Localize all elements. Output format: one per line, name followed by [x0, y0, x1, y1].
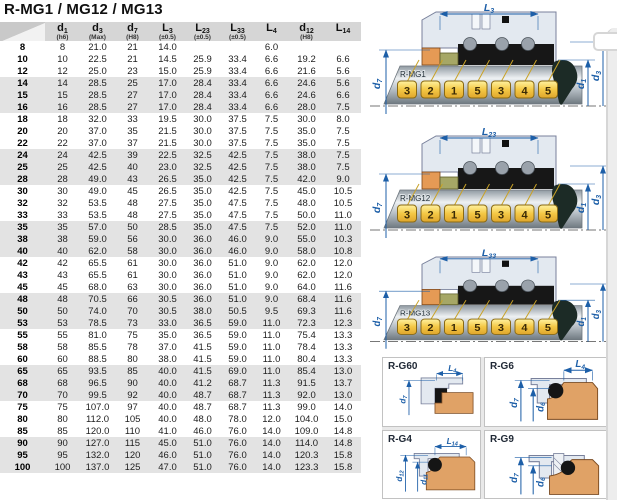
dimension-cell: 14.0	[255, 425, 288, 437]
dimension-cell: 49.0	[80, 173, 115, 185]
dimension-cell: 93.5	[80, 365, 115, 377]
dimension-cell: 21.5	[150, 125, 185, 137]
dimension-cell: 11.3	[255, 377, 288, 389]
column-header: L3(±0.5)	[150, 22, 185, 41]
row-size-label: 14	[0, 77, 45, 89]
table-row: 9595132.012046.051.076.014.0120.315.8	[0, 449, 361, 461]
dimension-cell: 41.5	[185, 365, 220, 377]
dimension-cell: 30.0	[150, 257, 185, 269]
dimension-cell: 10	[45, 53, 80, 65]
dimension-cell: 57.0	[80, 221, 115, 233]
dimension-cell: 12.3	[325, 317, 361, 329]
dimension-cell: 24.6	[288, 77, 325, 89]
dimension-cell: 45.0	[288, 185, 325, 197]
row-size-label: 22	[0, 137, 45, 149]
seat-drawing-r-g4: L14 d12 d11	[383, 431, 480, 499]
dimension-cell: 59.0	[220, 353, 255, 365]
dimension-cell: 32.5	[185, 161, 220, 173]
dimension-cell: 11.0	[255, 365, 288, 377]
dimension-cell: 40.0	[150, 389, 185, 401]
dimension-cell: 12.0	[255, 413, 288, 425]
seal-diagram-r-mg13: R-MG13 3215345 L33 d7 d1 d3	[366, 248, 612, 356]
svg-text:1: 1	[451, 86, 457, 98]
dimension-cell: 32.0	[80, 113, 115, 125]
dimension-cell: 10.5	[325, 185, 361, 197]
dimension-cell: 11.3	[255, 401, 288, 413]
dimension-cell: 48.0	[185, 413, 220, 425]
dimension-cell: 47.5	[220, 209, 255, 221]
dimension-cell: 8.0	[325, 113, 361, 125]
dimension-cell: 9.0	[255, 233, 288, 245]
dimension-cell: 61	[115, 257, 150, 269]
dimension-cell: 42.5	[220, 149, 255, 161]
dimension-cell: 105	[115, 413, 150, 425]
dimension-cell: 36.0	[185, 257, 220, 269]
table-header-row: d1(h6)d3(Max)d7(H8)L3(±0.5)L23(±0.5)L33(…	[0, 22, 361, 41]
dimension-cell: 85.4	[288, 365, 325, 377]
dimension-cell: 11.6	[325, 293, 361, 305]
dimension-cell: 6.6	[325, 53, 361, 65]
dimension-cell: 35.0	[185, 185, 220, 197]
dimension-cell: 7.5	[325, 149, 361, 161]
table-row: 8821.02114.06.0	[0, 41, 361, 53]
dimension-cell: 11.3	[255, 389, 288, 401]
seat-panel-r-g9: R-G9 d7 d6	[484, 430, 611, 500]
row-size-label: 80	[0, 413, 45, 425]
dimension-cell: 99.0	[288, 401, 325, 413]
dimension-cell: 30.0	[288, 113, 325, 125]
dimension-cell: 21.0	[80, 41, 115, 53]
dimension-cell: 65	[45, 365, 80, 377]
table-row: 383859.05630.036.046.09.055.010.3	[0, 233, 361, 245]
dimension-cell: 28.5	[150, 221, 185, 233]
dimension-cell: 78	[115, 341, 150, 353]
dimension-cell: 9.0	[255, 281, 288, 293]
dimension-cell: 70	[45, 389, 80, 401]
dimension-cell: 30.0	[150, 269, 185, 281]
dimension-cell: 68.4	[288, 293, 325, 305]
column-header: L4	[255, 22, 288, 41]
dimension-cell	[185, 41, 220, 53]
dimension-cell: 7.5	[255, 197, 288, 209]
dimension-cell: 32.5	[185, 149, 220, 161]
dimension-cell: 32	[45, 197, 80, 209]
row-size-label: 25	[0, 161, 45, 173]
table-row: 353557.05028.535.047.57.552.011.0	[0, 221, 361, 233]
table-row: 484870.56630.536.051.09.068.411.6	[0, 293, 361, 305]
dimension-cell: 19.5	[150, 113, 185, 125]
seat-drawing-r-g60: L4 d7	[383, 358, 480, 426]
dimension-cell: 56	[115, 233, 150, 245]
svg-text:5: 5	[545, 86, 551, 98]
dimension-cell: 45	[115, 185, 150, 197]
dimension-cell: 15.8	[325, 449, 361, 461]
dimension-cell: 48.7	[185, 389, 220, 401]
page-title: R-MG1 / MG12 / MG13	[4, 1, 163, 18]
dim-label-l4: L4	[575, 359, 585, 371]
dimension-cell: 112.0	[80, 413, 115, 425]
dimension-cell: 50.5	[220, 305, 255, 317]
dimension-cell: 66	[115, 293, 150, 305]
dimension-cell: 91.5	[288, 377, 325, 389]
dimension-cell: 36.5	[185, 317, 220, 329]
dimension-cell: 58.0	[288, 245, 325, 257]
dimension-cell: 9.0	[255, 293, 288, 305]
svg-text:3: 3	[498, 210, 504, 222]
dimension-cell: 64.0	[288, 281, 325, 293]
dimension-cell: 30.0	[150, 281, 185, 293]
table-row: 555581.07535.036.559.011.075.413.3	[0, 329, 361, 341]
dimension-cell: 35.0	[288, 125, 325, 137]
dimension-cell: 76.0	[220, 425, 255, 437]
dimension-cell: 9.0	[325, 173, 361, 185]
row-size-label: 38	[0, 233, 45, 245]
dimension-cell: 41.5	[185, 353, 220, 365]
dimension-cell: 7.5	[255, 125, 288, 137]
dimension-cell: 42.5	[220, 161, 255, 173]
dimension-cell: 28.0	[288, 101, 325, 113]
dimension-cell: 42.0	[288, 173, 325, 185]
dimension-cell: 46.0	[220, 245, 255, 257]
dim-label-top: L23	[482, 126, 496, 139]
dimension-cell: 30.5	[150, 293, 185, 305]
dimension-cell: 80.4	[288, 353, 325, 365]
row-size-label: 8	[0, 41, 45, 53]
row-size-label: 90	[0, 437, 45, 449]
row-size-label: 12	[0, 65, 45, 77]
dimension-cell: 47.5	[220, 221, 255, 233]
row-size-label: 28	[0, 173, 45, 185]
dimension-cell: 15.8	[325, 461, 361, 473]
dimension-cell: 52.0	[288, 221, 325, 233]
dimension-cell: 41.5	[185, 341, 220, 353]
dimension-cell: 26.5	[150, 173, 185, 185]
row-size-label: 32	[0, 197, 45, 209]
dimension-cell: 45	[45, 281, 80, 293]
dim-label-d7: d7	[371, 78, 384, 89]
svg-text:5: 5	[474, 324, 480, 334]
svg-text:4: 4	[521, 86, 528, 98]
table-row: 404062.05830.036.046.09.058.010.8	[0, 245, 361, 257]
page-edge-tab	[593, 32, 617, 51]
dimension-cell: 46.0	[220, 233, 255, 245]
dimension-cell: 23	[115, 65, 150, 77]
dimension-cell: 43	[45, 269, 80, 281]
dim-label-top: L3	[484, 2, 494, 15]
svg-text:3: 3	[404, 324, 410, 334]
dimension-cell: 16	[45, 101, 80, 113]
row-size-label: 18	[0, 113, 45, 125]
dimension-cell: 75	[45, 401, 80, 413]
dimension-cell: 80	[45, 413, 80, 425]
dimension-cell: 14.8	[325, 437, 361, 449]
dimension-cell: 72.3	[288, 317, 325, 329]
dimension-cell: 45.0	[150, 437, 185, 449]
dim-label-top: L33	[482, 249, 496, 260]
dimension-cell: 92	[115, 389, 150, 401]
dimension-cell: 19.2	[288, 53, 325, 65]
dimension-cell: 30.0	[185, 125, 220, 137]
dimension-cell: 104.0	[288, 413, 325, 425]
dimension-cell: 51.0	[185, 437, 220, 449]
dimension-cell: 7.5	[325, 137, 361, 149]
dim-label-l14: L14	[447, 436, 459, 446]
dimension-cell: 51.0	[185, 449, 220, 461]
dimension-cell: 11.0	[255, 317, 288, 329]
table-row: 424265.56130.036.051.09.062.012.0	[0, 257, 361, 269]
dimension-cell: 30.5	[150, 305, 185, 317]
dimension-cell: 26.5	[150, 185, 185, 197]
dimension-cell: 20	[45, 125, 80, 137]
dimension-cell: 30.0	[185, 137, 220, 149]
dimension-cell: 11.0	[255, 329, 288, 341]
dim-label-d7: d7	[372, 317, 385, 327]
dimension-cell: 35.0	[150, 329, 185, 341]
dimension-cell: 49.0	[80, 185, 115, 197]
dimension-cell: 36.0	[185, 293, 220, 305]
svg-text:2: 2	[427, 210, 433, 222]
dimension-cell: 69.3	[288, 305, 325, 317]
dimension-cell: 37.0	[80, 137, 115, 149]
column-header: L23(±0.5)	[185, 22, 220, 41]
dimension-cell: 7.5	[325, 101, 361, 113]
row-size-label: 85	[0, 425, 45, 437]
table-row: 585885.57837.041.559.011.078.413.3	[0, 341, 361, 353]
dimension-cell: 14.5	[150, 53, 185, 65]
dimension-cell: 17.0	[150, 89, 185, 101]
dimension-cell: 48	[115, 197, 150, 209]
dimension-cell: 28.5	[80, 89, 115, 101]
dimension-cell: 6.0	[255, 41, 288, 53]
dim-label-l4: L4	[448, 364, 457, 374]
dimension-cell: 9.0	[255, 245, 288, 257]
dimension-cell: 115	[115, 437, 150, 449]
column-header: d1(h6)	[45, 22, 80, 41]
dimension-cell: 13.3	[325, 329, 361, 341]
dimension-cell: 14.0	[255, 449, 288, 461]
dimension-cell: 35.0	[185, 197, 220, 209]
dimension-cell: 18	[45, 113, 80, 125]
dimension-cell: 51.0	[220, 269, 255, 281]
dimension-cell: 7.5	[325, 125, 361, 137]
dimension-cell: 7.5	[255, 137, 288, 149]
dimension-cell: 37.5	[220, 113, 255, 125]
dimension-cell: 10.3	[325, 233, 361, 245]
column-header: d3(Max)	[80, 22, 115, 41]
dimension-cell: 11.0	[325, 209, 361, 221]
dimension-cell: 48.7	[185, 401, 220, 413]
seat-variant-grid: R-G60 L4 d7 R-G6 L4 d7 d6	[382, 357, 612, 499]
table-row: 100100137.012547.051.076.014.0123.315.8	[0, 461, 361, 473]
dimension-cell: 6.6	[255, 77, 288, 89]
dimension-cell: 85	[45, 425, 80, 437]
dimension-cell: 59.0	[220, 317, 255, 329]
dimension-cell: 17.0	[150, 77, 185, 89]
dimension-cell: 12	[45, 65, 80, 77]
dimension-cell: 123.3	[288, 461, 325, 473]
dimension-cell: 33.0	[150, 317, 185, 329]
dimension-cell: 27	[115, 101, 150, 113]
row-size-label: 24	[0, 149, 45, 161]
dimension-cell: 21.5	[150, 137, 185, 149]
table-row: 101022.52114.525.933.46.619.26.6	[0, 53, 361, 65]
seat-panel-r-g4: R-G4 L14 d12 d11	[382, 430, 481, 500]
figure-label: R-MG12	[400, 194, 431, 203]
table-row: 282849.04326.535.042.57.542.09.0	[0, 173, 361, 185]
dimension-cell: 28.4	[185, 101, 220, 113]
column-header: L33(±0.5)	[220, 22, 255, 41]
row-size-label: 65	[0, 365, 45, 377]
row-size-label: 15	[0, 89, 45, 101]
dimension-cell: 85	[115, 365, 150, 377]
row-size-label: 100	[0, 461, 45, 473]
dimension-cell: 76.0	[220, 437, 255, 449]
dimension-cell: 96.5	[80, 377, 115, 389]
dimension-cell: 25	[115, 77, 150, 89]
dimension-cell: 22	[45, 137, 80, 149]
dimension-cell: 81.0	[80, 329, 115, 341]
dimension-cell: 78.0	[220, 413, 255, 425]
seal-diagram-r-mg1: R-MG1 3215345 L3 d7 d1 d3	[366, 2, 612, 122]
dimension-cell: 27.5	[150, 209, 185, 221]
dimension-cell: 7.5	[255, 221, 288, 233]
dimension-cell: 24	[45, 149, 80, 161]
dimension-cell: 35.0	[185, 209, 220, 221]
dimension-cell: 25.0	[80, 65, 115, 77]
dimension-cell: 90	[45, 437, 80, 449]
svg-text:1: 1	[451, 210, 457, 222]
seat-drawing-r-g6: L4 d7 d6	[485, 358, 610, 426]
dimension-cell: 15.0	[325, 413, 361, 425]
dim-label-d3: d3	[590, 71, 603, 81]
dimension-cell: 47.0	[150, 461, 185, 473]
dimension-cell: 22.5	[150, 149, 185, 161]
dimension-cell: 38.0	[150, 353, 185, 365]
dimension-cell: 51.0	[185, 461, 220, 473]
dimension-cell: 7.5	[255, 113, 288, 125]
dim-label-d3: d3	[590, 195, 603, 205]
dimension-cell: 28.5	[80, 101, 115, 113]
dimension-cell	[220, 41, 255, 53]
svg-text:2: 2	[427, 324, 433, 334]
row-size-label: 48	[0, 293, 45, 305]
table-row: 323253.54827.535.047.57.548.010.5	[0, 197, 361, 209]
dimension-cell: 70	[115, 305, 150, 317]
dimension-cell: 21	[115, 53, 150, 65]
dimension-cell: 48	[45, 293, 80, 305]
dimension-cell: 78.5	[80, 317, 115, 329]
table-row: 252542.54023.032.542.57.538.07.5	[0, 161, 361, 173]
dim-label-d3: d3	[591, 310, 604, 320]
dimension-cell: 15.0	[150, 65, 185, 77]
dimension-cell: 42.5	[220, 185, 255, 197]
dimension-cell: 7.5	[255, 149, 288, 161]
dimension-cell: 6.6	[255, 53, 288, 65]
table-body: 8821.02114.06.0101022.52114.525.933.46.6…	[0, 41, 361, 473]
table-row: 8585120.011041.046.076.014.0109.014.8	[0, 425, 361, 437]
row-size-label: 95	[0, 449, 45, 461]
dimension-cell: 63	[115, 281, 150, 293]
dimension-cell: 38.0	[288, 161, 325, 173]
dimension-cell: 6.6	[255, 89, 288, 101]
dimension-cell: 92.0	[288, 389, 325, 401]
dimension-cell: 10.5	[325, 197, 361, 209]
dimension-table: d1(h6)d3(Max)d7(H8)L3(±0.5)L23(±0.5)L33(…	[0, 22, 361, 473]
dimension-cell: 59.0	[80, 233, 115, 245]
table-row: 242442.53922.532.542.57.538.07.5	[0, 149, 361, 161]
row-size-label: 40	[0, 245, 45, 257]
dimension-cell: 13.3	[325, 341, 361, 353]
dimension-cell: 33	[45, 209, 80, 221]
dimension-cell: 11.0	[255, 341, 288, 353]
row-size-label: 30	[0, 185, 45, 197]
dimension-cell: 68.7	[220, 377, 255, 389]
dimension-cell: 24.6	[288, 89, 325, 101]
page-edge-strip	[606, 28, 617, 500]
dimension-cell: 14.0	[325, 401, 361, 413]
row-size-label: 16	[0, 101, 45, 113]
seal-diagram-r-mg12: R-MG12 3215345 L23 d7 d1 d3	[366, 126, 612, 246]
seat-drawing-r-g9: d7 d6	[485, 431, 610, 499]
dimension-cell: 30.0	[185, 113, 220, 125]
dimension-cell: 36.5	[185, 329, 220, 341]
table-row: 8080112.010540.048.078.012.0104.015.0	[0, 413, 361, 425]
dimension-cell: 33.4	[220, 89, 255, 101]
table-row: 686896.59040.041.268.711.391.513.7	[0, 377, 361, 389]
dimension-cell: 125	[115, 461, 150, 473]
row-size-label: 75	[0, 401, 45, 413]
dimension-cell: 76.0	[220, 461, 255, 473]
dimension-cell: 50	[115, 221, 150, 233]
dimension-cell: 12.0	[325, 257, 361, 269]
dimension-cell: 21	[115, 41, 150, 53]
seat-panel-r-g6: R-G6 L4 d7 d6	[484, 357, 611, 427]
dimension-cell: 9.0	[255, 269, 288, 281]
row-size-label: 55	[0, 329, 45, 341]
dimension-cell: 25	[45, 161, 80, 173]
dimension-cell: 35.0	[185, 173, 220, 185]
row-size-label: 10	[0, 53, 45, 65]
dimension-cell: 53.5	[80, 209, 115, 221]
dimension-cell: 9.5	[255, 305, 288, 317]
seat-panel-r-g60: R-G60 L4 d7	[382, 357, 481, 427]
row-size-label: 68	[0, 377, 45, 389]
dimension-cell: 41.2	[185, 377, 220, 389]
dimension-cell: 14.0	[255, 437, 288, 449]
dimension-cell: 33.4	[220, 65, 255, 77]
dimension-cell: 30.0	[150, 245, 185, 257]
dimension-cell: 60	[45, 353, 80, 365]
dimension-cell: 5.6	[325, 65, 361, 77]
dimension-cell: 127.0	[80, 437, 115, 449]
dimension-cell: 38	[45, 233, 80, 245]
dimension-cell: 137.0	[80, 461, 115, 473]
dimension-cell: 8	[45, 41, 80, 53]
dimension-cell: 65.5	[80, 257, 115, 269]
table-row: 7575107.09740.048.768.711.399.014.0	[0, 401, 361, 413]
dimension-cell: 14.8	[325, 425, 361, 437]
dimension-cell: 110	[115, 425, 150, 437]
dimension-cell: 42.5	[80, 149, 115, 161]
svg-text:5: 5	[474, 86, 480, 98]
dimension-cell: 75.4	[288, 329, 325, 341]
svg-text:3: 3	[404, 86, 410, 98]
row-size-label: 53	[0, 317, 45, 329]
svg-text:5: 5	[545, 210, 551, 222]
dimension-cell: 38.0	[185, 305, 220, 317]
dimension-cell: 114.0	[288, 437, 325, 449]
svg-text:5: 5	[545, 324, 551, 334]
